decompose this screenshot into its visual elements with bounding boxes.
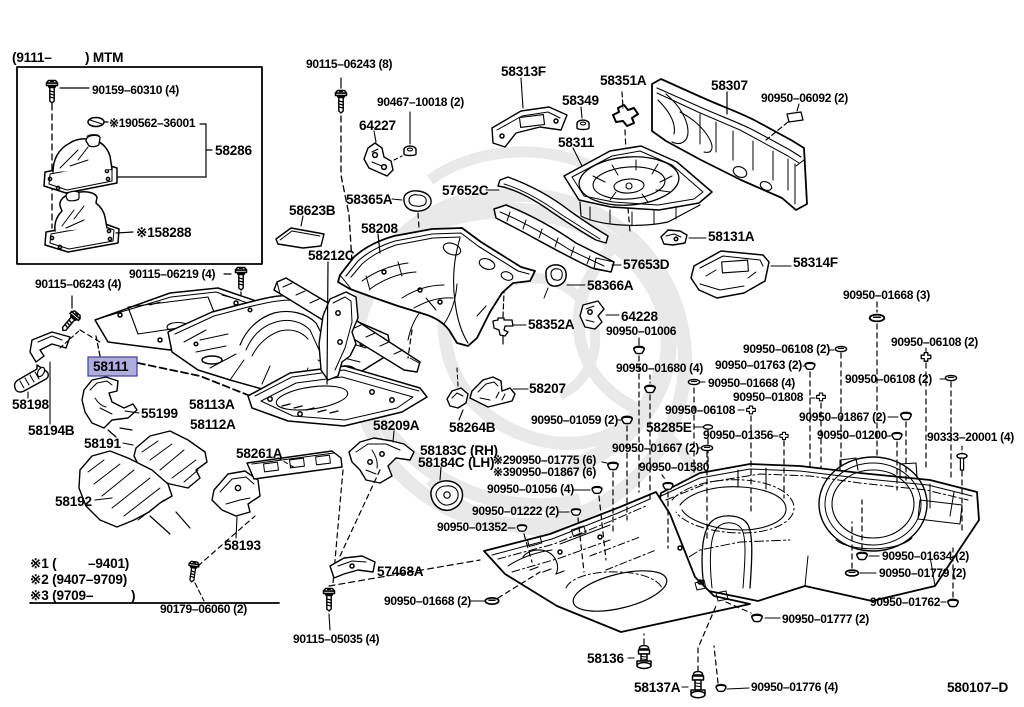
svg-text:58131A: 58131A [708, 229, 755, 244]
svg-text:90950–01808: 90950–01808 [733, 390, 804, 404]
svg-text:90950–01222 (2): 90950–01222 (2) [472, 504, 559, 518]
svg-text:58212C: 58212C [308, 248, 355, 263]
svg-text:58311: 58311 [558, 135, 595, 150]
svg-text:90115–06219 (4): 90115–06219 (4) [129, 267, 216, 281]
svg-text:90950–01776 (4): 90950–01776 (4) [751, 680, 838, 694]
svg-text:58112A: 58112A [190, 417, 236, 432]
svg-text:90467–10018 (2): 90467–10018 (2) [377, 95, 464, 109]
svg-text:58209A: 58209A [373, 418, 420, 433]
svg-text:※3 (9709–: ※3 (9709– [30, 588, 94, 603]
svg-text:90950–01777 (2): 90950–01777 (2) [782, 612, 869, 626]
svg-text:58194B: 58194B [28, 423, 75, 438]
svg-text:58264B: 58264B [449, 420, 496, 435]
svg-text:58351A: 58351A [600, 73, 647, 88]
svg-text:90950–06108: 90950–06108 [665, 403, 736, 417]
svg-text:※390950–01867 (6): ※390950–01867 (6) [493, 465, 596, 479]
svg-text:58191: 58191 [84, 436, 121, 451]
svg-text:58366A: 58366A [587, 278, 634, 293]
svg-text:90950–01763 (2): 90950–01763 (2) [715, 358, 802, 372]
svg-text:–9401): –9401) [88, 556, 129, 571]
svg-text:90950–06108 (2): 90950–06108 (2) [891, 335, 978, 349]
svg-text:※1 (: ※1 ( [30, 556, 57, 571]
svg-text:90950–01580: 90950–01580 [639, 460, 710, 474]
svg-text:90179–06060 (2): 90179–06060 (2) [160, 602, 247, 616]
svg-text:58286: 58286 [215, 143, 252, 158]
svg-text:90115–06243 (8): 90115–06243 (8) [306, 57, 393, 71]
svg-text:90950–06108 (2): 90950–06108 (2) [743, 342, 830, 356]
svg-text:90333–20001 (4): 90333–20001 (4) [927, 430, 1014, 444]
svg-text:90950–01668 (4): 90950–01668 (4) [708, 376, 795, 390]
svg-text:58352A: 58352A [528, 317, 575, 332]
svg-text:57652C: 57652C [442, 183, 489, 198]
svg-text:58261A: 58261A [236, 446, 283, 461]
svg-text:58113A: 58113A [189, 397, 235, 412]
svg-text:90950–01779 (2): 90950–01779 (2) [879, 566, 966, 580]
svg-text:58136: 58136 [587, 651, 624, 666]
svg-text:※190562–36001: ※190562–36001 [109, 116, 196, 130]
svg-text:58313F: 58313F [501, 64, 546, 79]
svg-text:90950–06092 (2): 90950–06092 (2) [761, 91, 848, 105]
svg-text:): ) [131, 588, 135, 603]
svg-text:90950–01668 (3): 90950–01668 (3) [843, 288, 930, 302]
svg-text:) MTM: ) MTM [85, 50, 123, 65]
svg-text:58623B: 58623B [289, 203, 336, 218]
svg-text:90950–01356: 90950–01356 [703, 428, 774, 442]
svg-text:58207: 58207 [529, 381, 566, 396]
svg-text:90950–01867 (2): 90950–01867 (2) [799, 410, 886, 424]
svg-text:58198: 58198 [12, 397, 49, 412]
svg-text:90950–01680 (4): 90950–01680 (4) [616, 361, 703, 375]
svg-text:※2 (9407–9709): ※2 (9407–9709) [30, 572, 127, 587]
svg-text:90950–01668 (2): 90950–01668 (2) [384, 594, 471, 608]
svg-text:90115–06243 (4): 90115–06243 (4) [35, 277, 122, 291]
svg-text:90115–05035 (4): 90115–05035 (4) [293, 632, 380, 646]
svg-text:90950–01006: 90950–01006 [606, 324, 677, 338]
svg-text:64228: 64228 [621, 309, 658, 324]
svg-text:58137A: 58137A [634, 680, 681, 695]
svg-text:90950–01352: 90950–01352 [437, 520, 508, 534]
svg-text:58184C (LH): 58184C (LH) [418, 455, 494, 470]
svg-text:58349: 58349 [562, 93, 599, 108]
svg-text:64227: 64227 [359, 118, 396, 133]
svg-text:90159–60310 (4): 90159–60310 (4) [92, 83, 179, 97]
svg-text:55199: 55199 [141, 406, 178, 421]
svg-text:58307: 58307 [711, 78, 748, 93]
svg-text:90950–01059 (2): 90950–01059 (2) [531, 413, 618, 427]
svg-text:※158288: ※158288 [136, 225, 192, 240]
svg-text:58208: 58208 [361, 221, 398, 236]
svg-text:58111: 58111 [93, 359, 129, 374]
svg-text:58193: 58193 [224, 538, 261, 553]
svg-text:90950–01634 (2): 90950–01634 (2) [882, 549, 969, 563]
svg-text:580107–D: 580107–D [947, 680, 1009, 695]
svg-text:58314F: 58314F [793, 255, 838, 270]
svg-text:90950–01762: 90950–01762 [870, 595, 941, 609]
svg-text:58285E: 58285E [646, 420, 692, 435]
svg-text:57468A: 57468A [377, 564, 424, 579]
svg-text:90950–01056 (4): 90950–01056 (4) [487, 482, 574, 496]
svg-text:90950–01200: 90950–01200 [817, 428, 888, 442]
svg-text:(9111–: (9111– [12, 50, 52, 65]
svg-text:58365A: 58365A [346, 192, 393, 207]
svg-text:58192: 58192 [55, 494, 92, 509]
svg-text:90950–01667 (2): 90950–01667 (2) [612, 441, 699, 455]
svg-text:90950–06108 (2): 90950–06108 (2) [845, 372, 932, 386]
svg-text:57653D: 57653D [623, 257, 670, 272]
